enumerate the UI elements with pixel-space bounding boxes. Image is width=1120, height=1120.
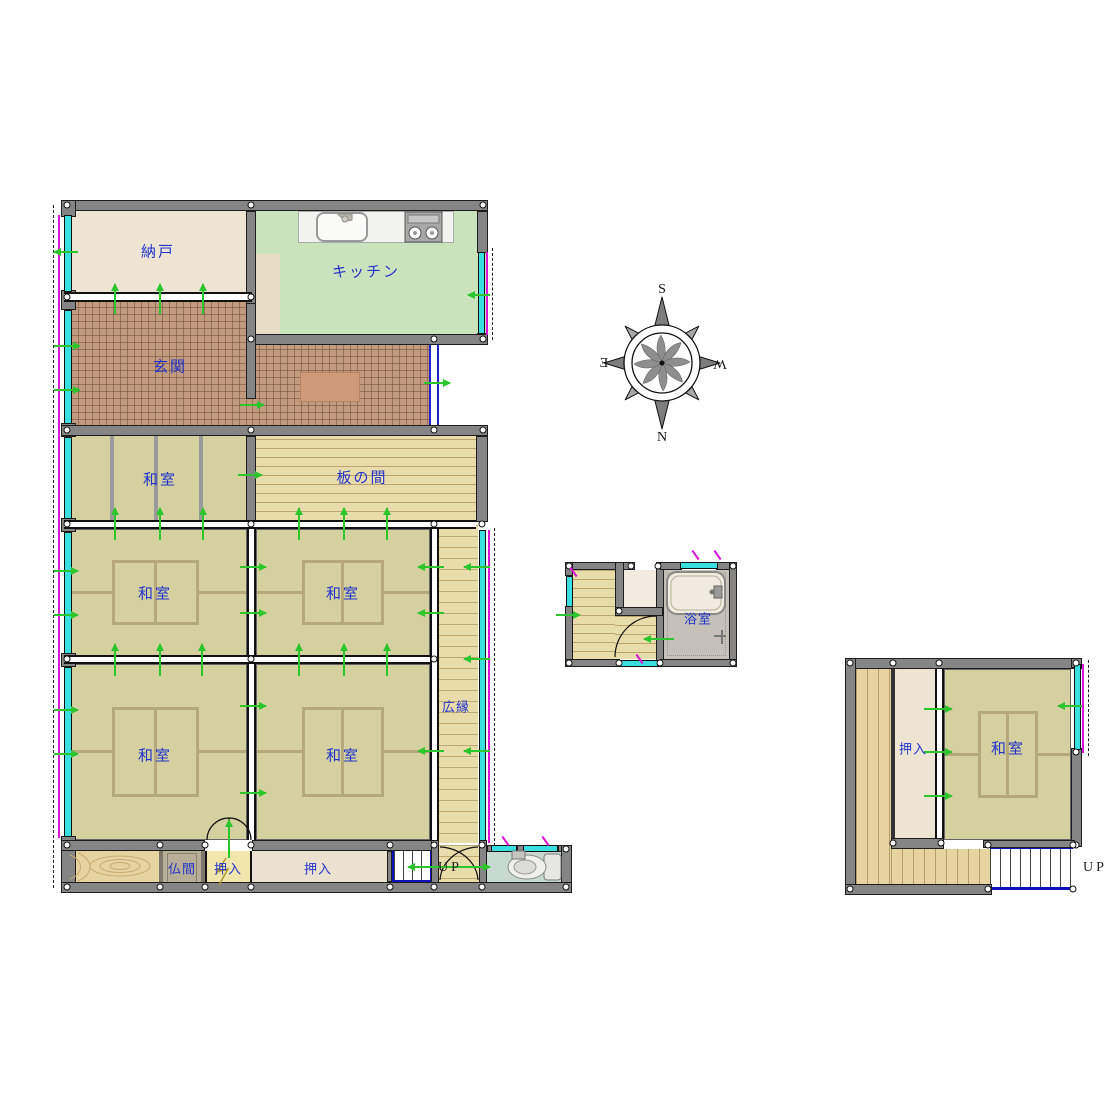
opening-arrow xyxy=(464,750,490,752)
window-line xyxy=(488,530,490,843)
wall-joint xyxy=(387,842,394,849)
wall-joint xyxy=(479,521,486,528)
wall-joint xyxy=(431,521,438,528)
opening-arrow xyxy=(924,708,952,710)
wall xyxy=(891,838,944,849)
window xyxy=(479,530,486,841)
window-dash xyxy=(492,248,493,340)
wall-joint xyxy=(248,202,255,209)
wall-joint xyxy=(655,563,662,570)
label-itanoma: 板の間 xyxy=(336,467,387,488)
wall-joint xyxy=(248,336,255,343)
opening-arrow xyxy=(240,705,266,707)
opening-arrow xyxy=(418,750,444,752)
label-washitsu-2f: 和室 xyxy=(991,738,1025,759)
wall xyxy=(477,211,488,253)
wall-joint xyxy=(431,842,438,849)
label-nando: 納戸 xyxy=(141,241,175,262)
opening-arrow xyxy=(464,566,490,568)
wall xyxy=(61,840,205,851)
wall-joint xyxy=(248,884,255,891)
wall-joint xyxy=(1070,842,1077,849)
opening-arrow xyxy=(468,294,490,296)
wall-joint xyxy=(479,884,486,891)
window-line xyxy=(58,215,60,838)
partition xyxy=(64,292,252,302)
wall xyxy=(845,884,992,895)
partition xyxy=(64,520,476,529)
tatami-line xyxy=(1038,753,1071,756)
wall-joint xyxy=(985,842,992,849)
opening-arrow xyxy=(228,820,230,858)
wall-joint xyxy=(248,656,255,663)
window xyxy=(64,437,72,519)
opening-arrow xyxy=(924,751,952,753)
stairs-2f xyxy=(990,846,1073,890)
wall xyxy=(387,851,392,882)
wall xyxy=(845,658,856,895)
wall xyxy=(246,436,256,522)
wall-joint xyxy=(563,846,570,853)
opening-arrow xyxy=(240,566,266,568)
window xyxy=(618,660,658,667)
wall xyxy=(983,840,1075,848)
compass-east: E xyxy=(600,356,609,372)
entry-step xyxy=(300,372,360,402)
opening-arrow xyxy=(202,508,204,540)
partition xyxy=(430,529,439,844)
window-dash xyxy=(53,205,54,888)
label-washitsu-top: 和室 xyxy=(143,469,177,490)
label-yokushitsu: 浴室 xyxy=(684,609,712,628)
tatami-line xyxy=(384,591,429,594)
window xyxy=(680,562,718,569)
sliding-door xyxy=(429,345,439,425)
opening-arrow xyxy=(159,508,161,540)
wall-joint xyxy=(431,656,438,663)
window xyxy=(1074,664,1081,750)
wall-joint xyxy=(730,563,737,570)
wall-joint xyxy=(480,427,487,434)
opening-arrow xyxy=(114,508,116,540)
opening-arrow xyxy=(1058,705,1082,707)
wall-joint xyxy=(431,884,438,891)
label-washitsu-bot-left: 和室 xyxy=(138,745,172,766)
opening-arrow xyxy=(240,612,266,614)
window xyxy=(478,252,485,334)
wall xyxy=(660,659,737,667)
wall-joint xyxy=(1073,749,1080,756)
wall-joint xyxy=(938,840,945,847)
wall-joint xyxy=(248,294,255,301)
partition xyxy=(935,669,944,841)
wall-joint xyxy=(890,660,897,667)
window xyxy=(523,845,558,852)
label-up-2f: UP xyxy=(1083,860,1107,876)
wall-joint xyxy=(64,294,71,301)
wood-grain-board xyxy=(64,851,159,882)
opening-arrow xyxy=(556,614,580,616)
floor-plan-canvas: 納戸 キッチン 玄関 和室 板の間 和室 和室 広縁 和室 和室 仏間 押入 押… xyxy=(0,0,1120,1120)
wall-joint xyxy=(157,842,164,849)
wall-joint xyxy=(387,884,394,891)
partition xyxy=(247,529,256,655)
wall xyxy=(660,562,682,570)
opening-arrow xyxy=(54,389,80,391)
wall-joint xyxy=(64,427,71,434)
wall xyxy=(565,562,635,570)
wall xyxy=(476,436,488,522)
window-line xyxy=(1082,664,1084,753)
opening-arrow xyxy=(54,614,78,616)
opening-arrow xyxy=(159,644,161,676)
label-oshiire-2f: 押入 xyxy=(899,739,927,758)
opening-arrow xyxy=(298,644,300,676)
wall-joint xyxy=(847,660,854,667)
wall xyxy=(61,425,488,436)
opening-arrow xyxy=(386,644,388,676)
kitchen-cabinet xyxy=(254,254,280,334)
kitchen-counter xyxy=(298,211,454,243)
compass-rose xyxy=(597,293,727,433)
opening-arrow xyxy=(238,474,262,476)
wall-joint xyxy=(847,886,854,893)
opening-arrow xyxy=(386,508,388,540)
wall-joint xyxy=(1070,886,1077,893)
opening-arrow xyxy=(418,612,444,614)
window-tick xyxy=(692,550,700,560)
wall-joint xyxy=(64,202,71,209)
wall xyxy=(565,659,620,667)
wall-joint xyxy=(64,656,71,663)
label-butsuma: 仏間 xyxy=(168,859,196,878)
label-up-1f: UP xyxy=(438,860,462,876)
wood-floor-2f-bottom xyxy=(891,849,990,884)
opening-arrow xyxy=(343,508,345,540)
opening-arrow xyxy=(54,251,78,253)
opening-arrow xyxy=(924,795,952,797)
wall-joint xyxy=(64,842,71,849)
compass-west: W xyxy=(713,355,726,371)
wall xyxy=(1071,748,1082,847)
tatami-line xyxy=(257,750,302,753)
wall-joint xyxy=(248,842,255,849)
wall xyxy=(891,669,895,841)
room-hiroen xyxy=(438,525,478,843)
wall-joint xyxy=(248,521,255,528)
wood-floor-2f-left xyxy=(856,669,891,884)
window xyxy=(64,532,72,654)
label-oshiire-small: 押入 xyxy=(214,859,242,878)
opening-arrow xyxy=(54,753,78,755)
opening-arrow xyxy=(54,345,80,347)
wall-joint xyxy=(616,608,623,615)
wall-joint xyxy=(628,563,635,570)
window-tick xyxy=(714,550,722,560)
window xyxy=(64,215,72,292)
window-dash xyxy=(494,528,495,846)
opening-arrow xyxy=(201,644,203,676)
wall-joint xyxy=(1073,660,1080,667)
wall-joint xyxy=(563,884,570,891)
wall-joint xyxy=(64,884,71,891)
label-genkan: 玄関 xyxy=(153,356,187,377)
wall-joint xyxy=(657,660,664,667)
wall-joint xyxy=(479,842,486,849)
tatami-line xyxy=(65,591,112,594)
wall-joint xyxy=(248,427,255,434)
opening-arrow xyxy=(54,709,78,711)
label-kitchen: キッチン xyxy=(332,261,400,282)
window xyxy=(64,310,72,424)
label-washitsu-mid-left: 和室 xyxy=(138,583,172,604)
wall-joint xyxy=(616,660,623,667)
wall-joint xyxy=(566,660,573,667)
wall-joint xyxy=(936,660,943,667)
wall xyxy=(246,303,256,399)
wall-joint xyxy=(890,840,897,847)
label-oshiire-wide: 押入 xyxy=(304,859,332,878)
opening-arrow xyxy=(644,638,674,640)
opening-arrow xyxy=(464,658,490,660)
window xyxy=(491,845,517,852)
opening-arrow xyxy=(240,404,264,406)
wall-joint xyxy=(431,427,438,434)
partition xyxy=(247,664,256,840)
wall xyxy=(246,334,488,345)
wall-joint xyxy=(480,336,487,343)
wall-joint xyxy=(985,886,992,893)
tatami-line xyxy=(199,591,246,594)
opening-arrow xyxy=(418,566,444,568)
opening-arrow xyxy=(240,792,266,794)
wall-joint xyxy=(480,202,487,209)
wall xyxy=(61,882,572,893)
label-washitsu-mid-right: 和室 xyxy=(326,583,360,604)
wall-joint xyxy=(202,842,209,849)
opening-arrow xyxy=(424,382,450,384)
wall xyxy=(252,840,434,851)
tatami-line xyxy=(199,750,246,753)
wall-joint xyxy=(730,660,737,667)
window xyxy=(566,576,573,607)
wall xyxy=(845,658,1082,669)
opening-arrow xyxy=(298,508,300,540)
wall-joint xyxy=(64,521,71,528)
opening-arrow xyxy=(159,284,161,314)
wall-joint xyxy=(431,336,438,343)
opening-arrow xyxy=(114,284,116,314)
opening-arrow xyxy=(114,644,116,676)
label-hiroen: 広縁 xyxy=(442,697,470,716)
room-toilet xyxy=(482,851,562,882)
tatami-line xyxy=(257,591,302,594)
opening-arrow xyxy=(202,284,204,314)
wall xyxy=(729,562,737,667)
wall-joint xyxy=(157,884,164,891)
compass-north: N xyxy=(657,430,667,446)
bath-hall-notch xyxy=(624,570,656,607)
wall-joint xyxy=(202,884,209,891)
label-washitsu-bot-right: 和室 xyxy=(326,745,360,766)
opening-arrow xyxy=(54,570,78,572)
window-dash xyxy=(1088,660,1089,756)
wall xyxy=(62,200,488,211)
compass-south: S xyxy=(658,282,666,298)
opening-arrow xyxy=(343,644,345,676)
